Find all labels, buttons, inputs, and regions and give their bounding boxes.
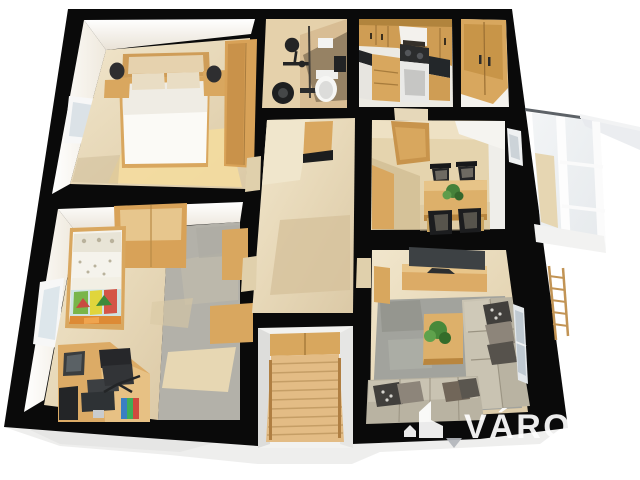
svg-text:VÁRO: VÁRO <box>464 408 572 446</box>
